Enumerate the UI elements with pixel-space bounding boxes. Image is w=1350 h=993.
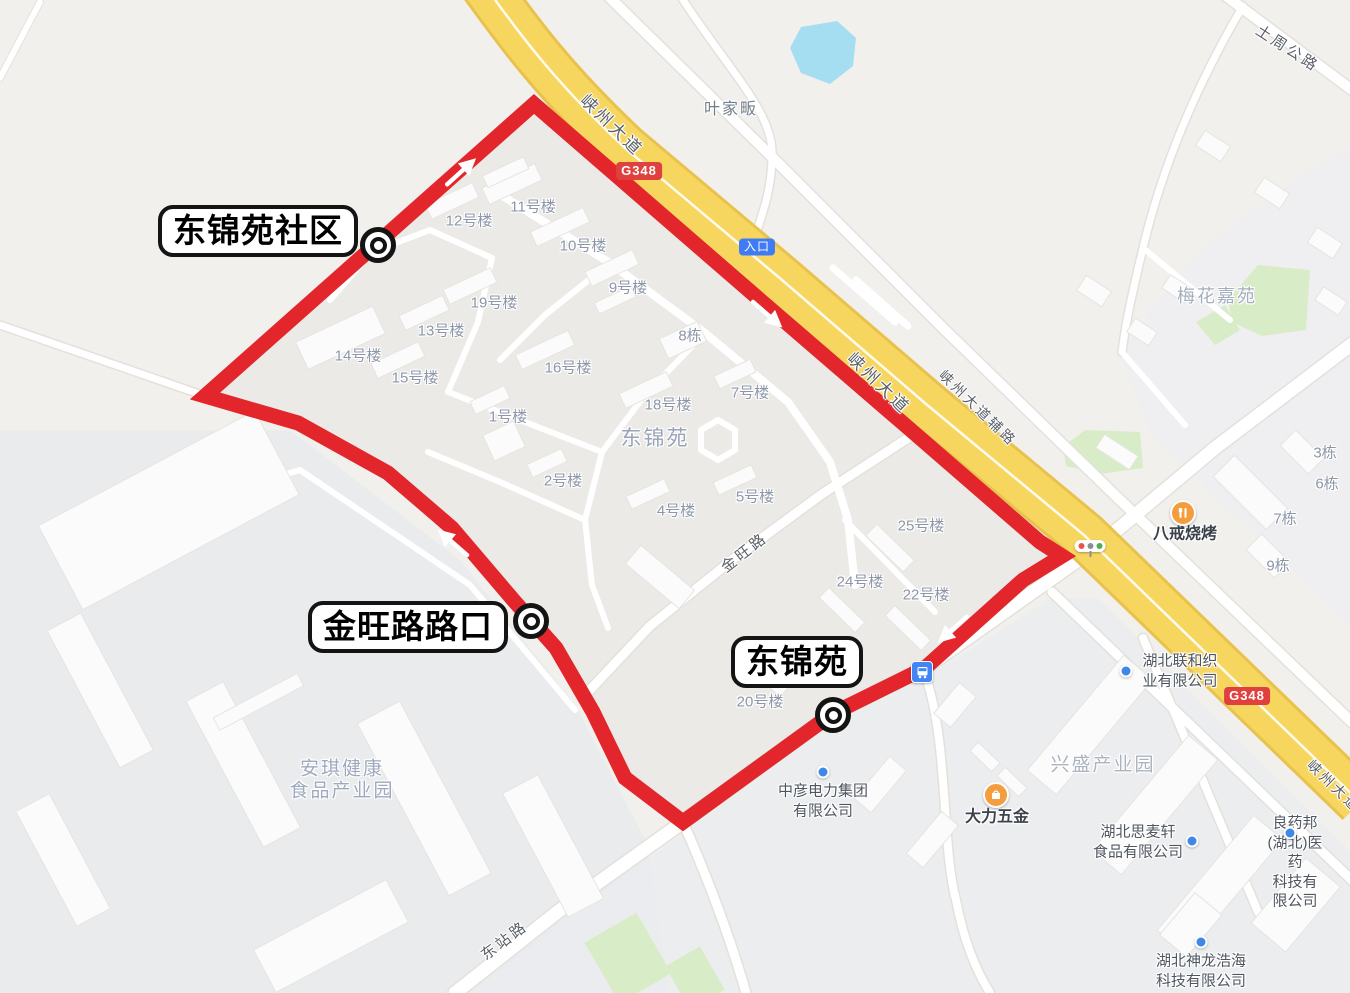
building-label: 20号楼	[737, 691, 784, 712]
building-label: 11号楼	[510, 196, 556, 217]
building-label: 8栋	[678, 325, 701, 346]
road-label: 金旺路	[716, 527, 771, 577]
traffic-light-icon	[1075, 540, 1106, 552]
building-label: 19号楼	[471, 292, 518, 313]
bus-stop-icon[interactable]	[911, 661, 933, 683]
building-label: 22号楼	[903, 584, 950, 605]
route-stop-marker[interactable]	[815, 697, 851, 733]
building-label: 9栋	[1266, 555, 1289, 576]
road-label: 峡州大道	[1303, 755, 1350, 817]
entrance-badge: 入口	[739, 239, 775, 256]
poi-label: 湖北神龙浩海 科技有限公司	[1156, 952, 1246, 991]
road-shield-badge: G348	[616, 162, 662, 180]
road-label: 峡州大道辅路	[934, 365, 1021, 450]
road-label: 东站路	[476, 915, 532, 964]
building-label: 12号楼	[446, 210, 493, 231]
building-label: 7号楼	[731, 382, 769, 403]
building-label: 16号楼	[545, 357, 592, 378]
building-label: 13号楼	[418, 320, 465, 341]
route-stop-marker-inner	[370, 237, 387, 254]
poi-label: 八戒烧烤	[1153, 525, 1217, 546]
map-canvas[interactable]: 11号楼12号楼10号楼9号楼19号楼13号楼14号楼15号楼16号楼8栋18号…	[0, 0, 1350, 993]
building-label: 24号楼	[837, 571, 884, 592]
building-label: 18号楼	[645, 394, 692, 415]
building-label: 1号楼	[489, 406, 527, 427]
poi-dot-icon[interactable]	[1186, 835, 1199, 848]
building-label: 9号楼	[609, 277, 647, 298]
poi-label: 大力五金	[965, 808, 1029, 829]
building-label: 3栋	[1313, 442, 1336, 463]
route-stop-marker-inner	[825, 707, 842, 724]
route-stop-marker[interactable]	[360, 227, 396, 263]
building-label: 25号楼	[898, 515, 945, 536]
poi-dot-icon[interactable]	[817, 766, 830, 779]
restaurant-icon[interactable]	[1170, 500, 1196, 526]
building-label: 14号楼	[335, 345, 382, 366]
road-shield-badge: G348	[1224, 687, 1270, 705]
poi-dot-icon[interactable]	[1120, 665, 1133, 678]
area-label: 叶家畈	[704, 95, 758, 119]
route-stop-label[interactable]: 金旺路路口	[308, 601, 508, 653]
area-label: 梅花嘉苑	[1177, 282, 1257, 308]
area-label: 食品产业园	[289, 776, 394, 803]
building-label: 4号楼	[657, 500, 695, 521]
road-label: 峡州大道	[576, 87, 651, 161]
poi-label: 湖北思麦轩 食品有限公司	[1093, 823, 1183, 862]
route-stop-label[interactable]: 东锦苑社区	[158, 205, 358, 257]
area-label: 兴盛产业园	[1050, 750, 1155, 777]
area-label: 东锦苑	[621, 422, 690, 452]
shopping-icon[interactable]	[983, 782, 1009, 808]
building-label: 7栋	[1273, 508, 1296, 529]
road-label: 峡州大道	[843, 345, 918, 419]
building-label: 15号楼	[392, 367, 439, 388]
road-label: 土周公路	[1252, 20, 1324, 77]
building-label: 5号楼	[736, 486, 774, 507]
building-label: 6栋	[1315, 473, 1338, 494]
map-labels-layer: 11号楼12号楼10号楼9号楼19号楼13号楼14号楼15号楼16号楼8栋18号…	[0, 0, 1350, 993]
poi-dot-icon[interactable]	[1284, 827, 1297, 840]
poi-label: 湖北联和织 业有限公司	[1142, 652, 1217, 691]
route-stop-marker[interactable]	[513, 603, 549, 639]
poi-dot-icon[interactable]	[1195, 936, 1208, 949]
route-stop-marker-inner	[523, 613, 540, 630]
building-label: 10号楼	[560, 235, 607, 256]
poi-label: 中彦电力集团 有限公司	[778, 782, 868, 821]
route-stop-label[interactable]: 东锦苑	[731, 636, 863, 688]
building-label: 2号楼	[544, 470, 582, 491]
